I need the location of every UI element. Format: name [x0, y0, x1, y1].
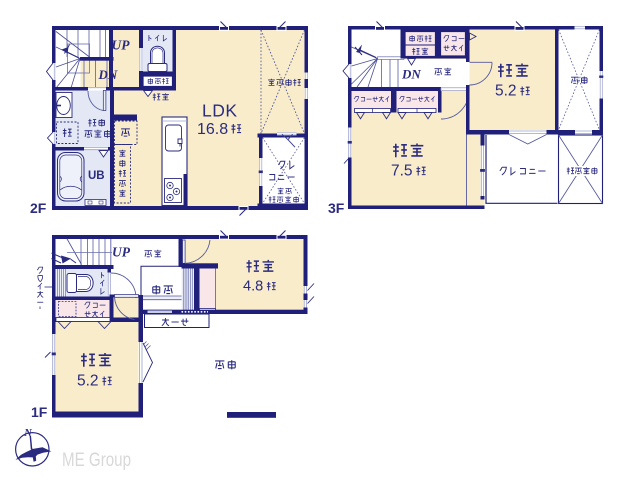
svg-text:UP: UP [112, 38, 131, 53]
svg-text:2F: 2F [30, 200, 47, 216]
svg-text:DN: DN [98, 67, 118, 82]
svg-text:UP: UP [112, 245, 131, 260]
svg-text:DN: DN [401, 67, 421, 82]
svg-text:1F: 1F [31, 404, 48, 420]
svg-text:4.8: 4.8 [243, 279, 263, 295]
svg-text:3F: 3F [328, 200, 345, 216]
svg-text:5.2: 5.2 [495, 83, 517, 100]
svg-text:5.2: 5.2 [77, 373, 99, 390]
svg-text:LDK: LDK [202, 101, 238, 121]
svg-text:7.5: 7.5 [391, 163, 413, 180]
svg-text:16.8: 16.8 [197, 121, 228, 138]
svg-text:ME Group: ME Group [62, 450, 131, 471]
svg-text:UB: UB [88, 170, 105, 182]
